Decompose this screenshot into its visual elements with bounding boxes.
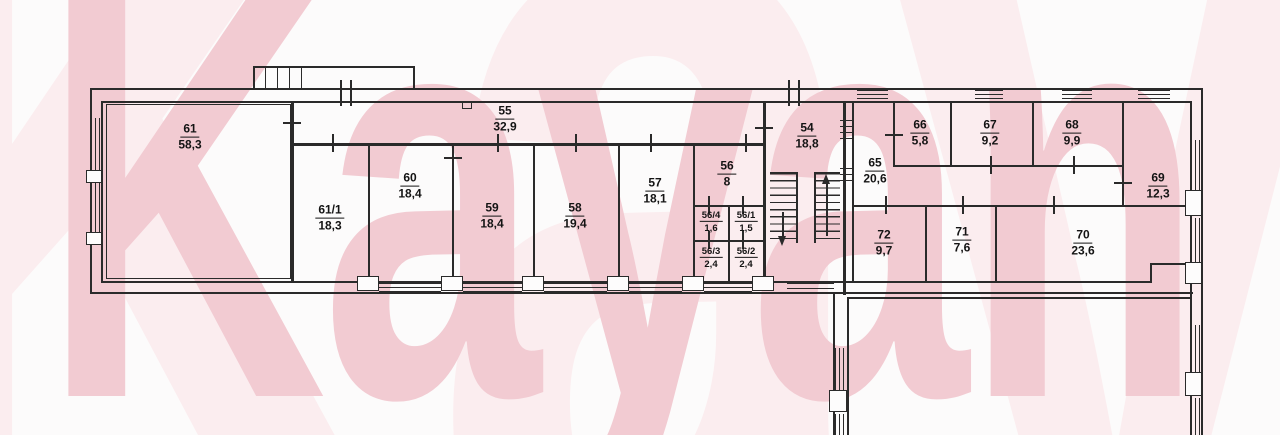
room-number: 56/2 bbox=[735, 246, 758, 258]
room-label-57: 5718,1 bbox=[643, 176, 666, 207]
wall-line bbox=[90, 88, 92, 294]
door-tick bbox=[444, 157, 462, 159]
wall-pier bbox=[752, 276, 774, 291]
room-number: 56/1 bbox=[735, 210, 758, 222]
wall-line bbox=[833, 292, 835, 435]
room-label-56-2: 56/22,4 bbox=[735, 246, 758, 270]
room-label-66: 665,8 bbox=[910, 118, 929, 149]
room-number: 61 bbox=[180, 122, 199, 138]
door-tick bbox=[885, 134, 903, 136]
wall-pier bbox=[829, 390, 847, 412]
wall-pier bbox=[86, 232, 102, 245]
room-number: 54 bbox=[797, 121, 816, 137]
wall-line bbox=[950, 101, 952, 167]
window-symbol bbox=[629, 283, 682, 292]
wall-line bbox=[693, 143, 695, 283]
room-number: 61/1 bbox=[315, 203, 344, 219]
room-label-60: 6018,4 bbox=[398, 171, 421, 202]
room-area: 12,3 bbox=[1146, 187, 1169, 202]
room-label-56-1: 56/11,5 bbox=[735, 210, 758, 234]
room-area: 5,8 bbox=[910, 134, 929, 149]
wall-line bbox=[925, 205, 927, 283]
wall-line bbox=[533, 143, 535, 283]
room-number: 69 bbox=[1148, 171, 1167, 187]
wall-line bbox=[368, 143, 370, 283]
room-label-71: 717,6 bbox=[952, 225, 971, 256]
wall-line bbox=[101, 101, 1190, 103]
window-symbol bbox=[91, 182, 100, 232]
wall-line bbox=[301, 66, 302, 88]
room-number: 70 bbox=[1073, 228, 1092, 244]
room-area: 19,4 bbox=[563, 217, 586, 232]
window-symbol bbox=[1191, 398, 1200, 435]
room-area: 58,3 bbox=[178, 138, 201, 153]
window-symbol bbox=[1062, 90, 1092, 99]
room-area: 2,4 bbox=[700, 258, 723, 270]
room-label-65: 6520,6 bbox=[863, 156, 886, 187]
room-area: 1,6 bbox=[700, 222, 723, 234]
room-area: 18,3 bbox=[315, 219, 344, 234]
wall-line bbox=[852, 101, 854, 283]
room-label-61-1: 61/118,3 bbox=[315, 203, 344, 234]
room-number: 59 bbox=[482, 201, 501, 217]
floor-plan-canvas: Kayan Kayan 6158,35532,961/118,36018,459… bbox=[0, 0, 1280, 435]
wall-line bbox=[1032, 101, 1034, 167]
stair-down-arrow-icon bbox=[778, 236, 786, 246]
window-symbol bbox=[1191, 325, 1200, 372]
wall-line bbox=[852, 205, 1190, 207]
room-area: 1,5 bbox=[735, 222, 758, 234]
door-tick bbox=[745, 134, 747, 152]
window-symbol bbox=[1191, 218, 1200, 262]
wall-line bbox=[845, 281, 1152, 283]
window-symbol bbox=[975, 90, 1003, 99]
wall-line bbox=[265, 66, 266, 88]
wall-line bbox=[291, 101, 294, 283]
window-symbol bbox=[704, 283, 752, 292]
wall-line bbox=[1150, 263, 1152, 283]
room-number: 57 bbox=[645, 176, 664, 192]
wall-line bbox=[843, 101, 846, 295]
room-number: 67 bbox=[980, 118, 999, 134]
room-number: 72 bbox=[874, 228, 893, 244]
wall-line bbox=[452, 143, 454, 283]
room-number: 55 bbox=[495, 104, 514, 120]
wall-line bbox=[787, 288, 834, 289]
wall-line bbox=[618, 143, 620, 283]
wall-line bbox=[462, 101, 463, 109]
room-area: 8 bbox=[717, 175, 736, 190]
room-area: 18,8 bbox=[795, 137, 818, 152]
wall-line bbox=[728, 205, 730, 283]
room-number: 56/4 bbox=[700, 210, 723, 222]
wall-line bbox=[277, 66, 278, 88]
room-label-68: 689,9 bbox=[1062, 118, 1081, 149]
room-area: 9,9 bbox=[1062, 134, 1081, 149]
room-area: 20,6 bbox=[863, 172, 886, 187]
room-number: 71 bbox=[952, 225, 971, 241]
room-label-67: 679,2 bbox=[980, 118, 999, 149]
room-number: 68 bbox=[1062, 118, 1081, 134]
window-symbol bbox=[463, 283, 522, 292]
room-label-56: 568 bbox=[717, 159, 736, 190]
wall-line bbox=[796, 172, 798, 243]
window-symbol bbox=[1191, 140, 1200, 190]
room-label-55: 5532,9 bbox=[493, 104, 516, 135]
window-symbol bbox=[379, 283, 441, 292]
wall-line bbox=[101, 281, 847, 283]
wall-line bbox=[289, 66, 290, 88]
room-area: 9,2 bbox=[980, 134, 999, 149]
room-area: 7,6 bbox=[952, 241, 971, 256]
room-area: 9,7 bbox=[874, 244, 893, 259]
door-tick bbox=[650, 134, 652, 152]
wall-line bbox=[1122, 101, 1124, 207]
door-tick bbox=[990, 156, 992, 174]
window-symbol bbox=[544, 283, 607, 292]
door-tick bbox=[1114, 182, 1132, 184]
room-area: 2,4 bbox=[735, 258, 758, 270]
room-number: 56 bbox=[717, 159, 736, 175]
door-tick bbox=[575, 134, 577, 152]
wall-line bbox=[847, 297, 849, 435]
door-tick bbox=[350, 80, 352, 106]
wall-line bbox=[413, 66, 415, 90]
room-number: 58 bbox=[565, 201, 584, 217]
room-number: 60 bbox=[400, 171, 419, 187]
door-tick bbox=[283, 122, 301, 124]
door-tick bbox=[497, 134, 499, 152]
wall-pier bbox=[86, 170, 102, 183]
window-symbol bbox=[857, 90, 888, 99]
door-tick bbox=[885, 196, 887, 214]
stair-up-arrow-icon bbox=[822, 174, 830, 184]
room-area: 32,9 bbox=[493, 120, 516, 135]
door-tick bbox=[1053, 196, 1055, 214]
room-label-59: 5918,4 bbox=[480, 201, 503, 232]
wall-pier bbox=[522, 276, 544, 291]
room-area: 18,4 bbox=[398, 187, 421, 202]
wall-pier bbox=[607, 276, 629, 291]
stair-flight bbox=[770, 172, 796, 244]
room-area: 18,1 bbox=[643, 192, 666, 207]
wall-line bbox=[847, 297, 1192, 299]
door-tick bbox=[755, 127, 773, 129]
room-label-56-3: 56/32,4 bbox=[700, 246, 723, 270]
wall-pier bbox=[682, 276, 704, 291]
wall-line bbox=[90, 292, 1193, 294]
room-label-61: 6158,3 bbox=[178, 122, 201, 153]
wall-line bbox=[995, 205, 997, 283]
wall-pier bbox=[357, 276, 379, 291]
window-symbol bbox=[835, 414, 844, 435]
room-area: 23,6 bbox=[1071, 244, 1094, 259]
door-tick bbox=[798, 80, 800, 106]
wall-pier bbox=[1185, 372, 1202, 396]
room-label-70: 7023,6 bbox=[1071, 228, 1094, 259]
wall-line bbox=[893, 165, 1124, 167]
window-symbol bbox=[835, 348, 844, 390]
wall-line bbox=[90, 88, 1203, 90]
window-symbol bbox=[91, 118, 100, 172]
room-label-69: 6912,3 bbox=[1146, 171, 1169, 202]
wall-line bbox=[253, 66, 255, 90]
wall-line bbox=[787, 283, 834, 284]
room-number: 65 bbox=[865, 156, 884, 172]
room-label-56-4: 56/41,6 bbox=[700, 210, 723, 234]
door-tick bbox=[788, 80, 790, 106]
room-label-58: 5819,4 bbox=[563, 201, 586, 232]
wall-pier bbox=[441, 276, 463, 291]
room-label-72: 729,7 bbox=[874, 228, 893, 259]
door-tick bbox=[962, 196, 964, 214]
wall-line bbox=[101, 101, 103, 283]
wall-line bbox=[471, 101, 472, 109]
window-symbol bbox=[1138, 90, 1170, 99]
room-number: 66 bbox=[910, 118, 929, 134]
wall-pier bbox=[1185, 262, 1202, 284]
room-label-54: 5418,8 bbox=[795, 121, 818, 152]
room-area: 18,4 bbox=[480, 217, 503, 232]
door-tick bbox=[1073, 156, 1075, 174]
door-tick bbox=[332, 134, 334, 152]
room-number: 56/3 bbox=[700, 246, 723, 258]
door-tick bbox=[340, 80, 342, 106]
wall-pier bbox=[1185, 190, 1202, 216]
